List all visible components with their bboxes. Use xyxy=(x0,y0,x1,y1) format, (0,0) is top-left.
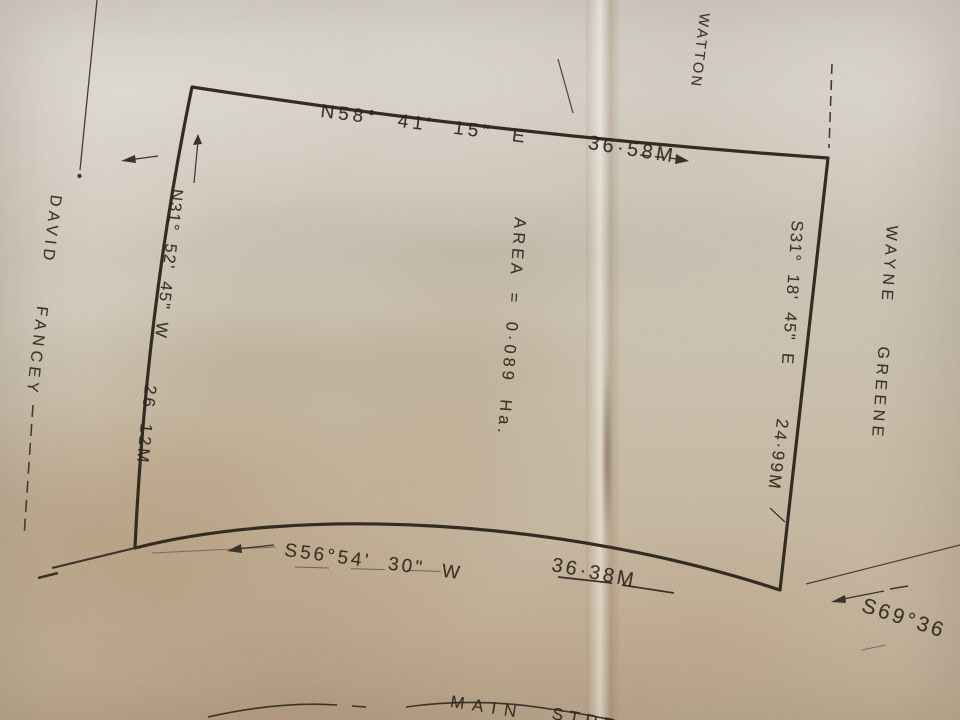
west-side-arrowhead-icon xyxy=(193,134,202,145)
east-distance-tick xyxy=(770,508,785,522)
north-dashed-tie-line xyxy=(829,64,832,148)
west-adjoiner-line-end-dot xyxy=(77,174,81,178)
southeast-arrowhead-icon xyxy=(831,595,846,603)
west-outer-arrowhead-icon xyxy=(121,155,136,163)
south-leader-line xyxy=(152,547,276,553)
west-adjoiner-line xyxy=(80,0,97,170)
road-line-southwest xyxy=(52,548,135,568)
west-side-arrow-shaft xyxy=(194,141,198,183)
parcel-boundary xyxy=(135,87,828,590)
road-line-southeast xyxy=(806,545,960,584)
fold-tick-line xyxy=(558,59,573,113)
survey-plan-photo: N58° 41' 15" E 36·58M N31° 52' 45" W 26 … xyxy=(0,0,960,720)
road-line-dash xyxy=(38,573,58,578)
west-dashed-line xyxy=(24,405,33,537)
survey-linework xyxy=(0,0,960,720)
north-distance-arrowhead-icon xyxy=(675,154,689,164)
road-bearing-underline xyxy=(862,645,886,650)
